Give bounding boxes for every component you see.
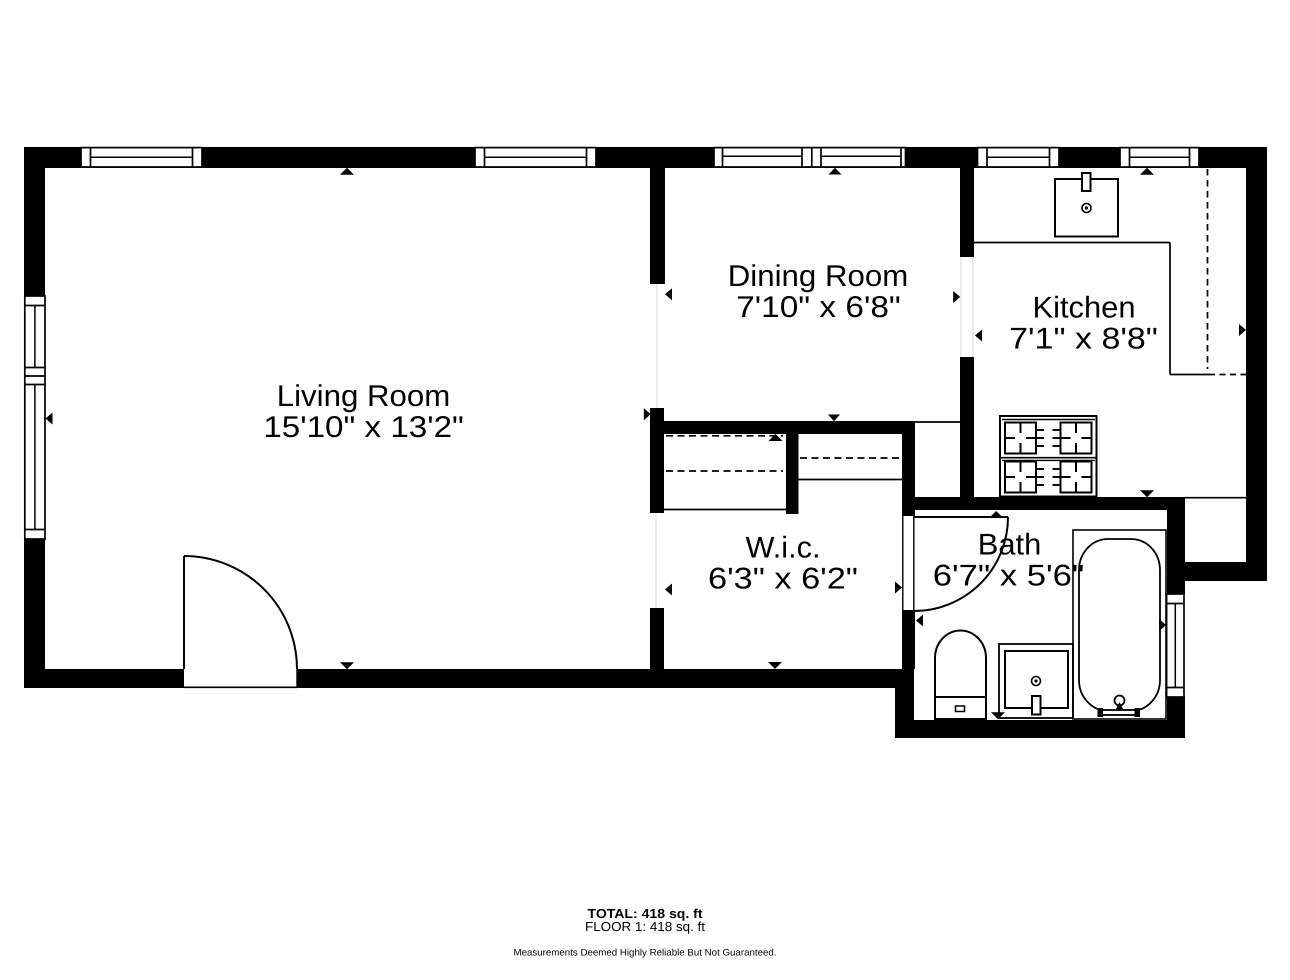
- svg-text:7'1" x 8'8": 7'1" x 8'8": [1009, 323, 1158, 356]
- svg-text:15'10" x 13'2": 15'10" x 13'2": [263, 411, 464, 444]
- svg-text:6'7" x 5'6": 6'7" x 5'6": [933, 560, 1085, 593]
- svg-text:Bath: Bath: [978, 529, 1042, 562]
- svg-text:FLOOR 1: 418 sq. ft: FLOOR 1: 418 sq. ft: [585, 919, 705, 934]
- svg-text:W.i.c.: W.i.c.: [746, 532, 821, 565]
- svg-text:Dining Room: Dining Room: [728, 260, 909, 293]
- svg-text:Living Room: Living Room: [277, 380, 451, 413]
- svg-text:Measurements Deemed Highly Rel: Measurements Deemed Highly Reliable But …: [514, 948, 777, 959]
- svg-text:7'10" x 6'8": 7'10" x 6'8": [736, 291, 901, 324]
- svg-text:Kitchen: Kitchen: [1033, 292, 1136, 325]
- svg-text:6'3" x 6'2": 6'3" x 6'2": [708, 563, 858, 596]
